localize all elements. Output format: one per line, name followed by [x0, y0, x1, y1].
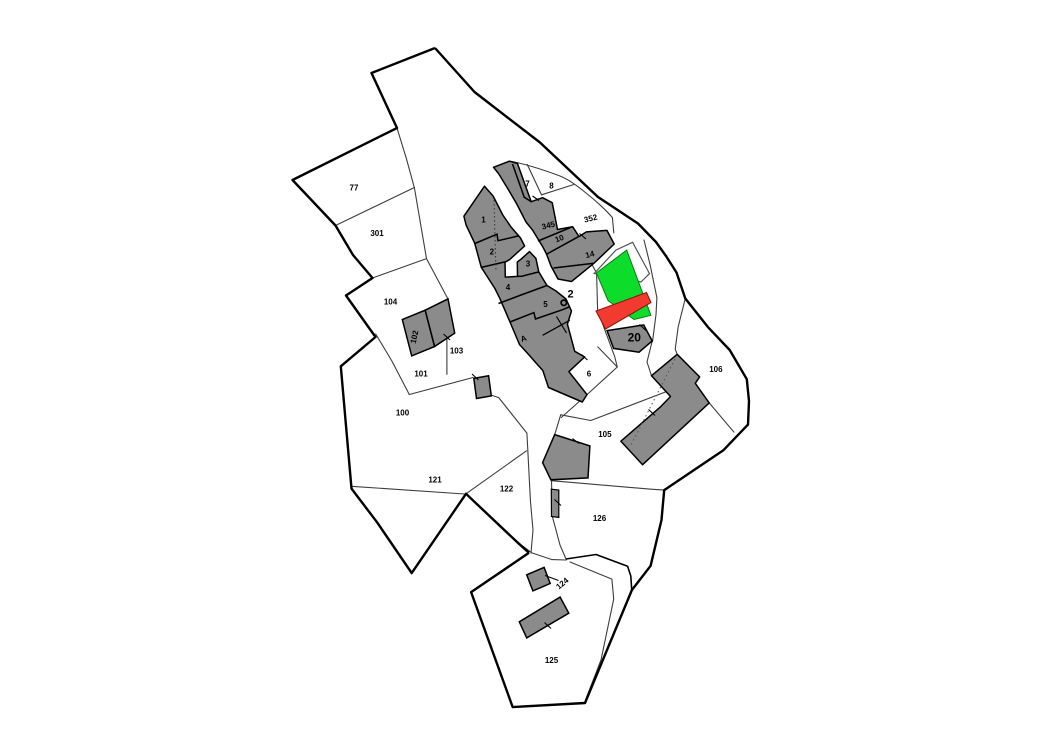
- svg-text:104: 104: [384, 298, 398, 307]
- svg-text:8: 8: [549, 182, 554, 191]
- svg-text:103: 103: [450, 347, 464, 356]
- svg-text:2: 2: [490, 247, 495, 256]
- svg-text:2: 2: [567, 289, 573, 301]
- svg-text:3: 3: [526, 259, 531, 268]
- svg-text:101: 101: [414, 369, 428, 378]
- svg-text:20: 20: [628, 331, 642, 345]
- svg-text:4: 4: [506, 283, 511, 292]
- svg-text:301: 301: [370, 229, 384, 238]
- svg-text:6: 6: [587, 370, 592, 379]
- svg-text:125: 125: [545, 656, 559, 665]
- svg-text:126: 126: [593, 514, 607, 523]
- svg-text:1: 1: [481, 216, 486, 225]
- svg-text:121: 121: [428, 476, 442, 485]
- svg-text:122: 122: [500, 485, 514, 494]
- svg-text:7: 7: [525, 179, 530, 188]
- svg-text:100: 100: [396, 409, 410, 418]
- svg-text:5: 5: [543, 300, 548, 309]
- svg-text:105: 105: [598, 430, 612, 439]
- svg-text:106: 106: [709, 365, 723, 374]
- svg-text:77: 77: [350, 184, 359, 193]
